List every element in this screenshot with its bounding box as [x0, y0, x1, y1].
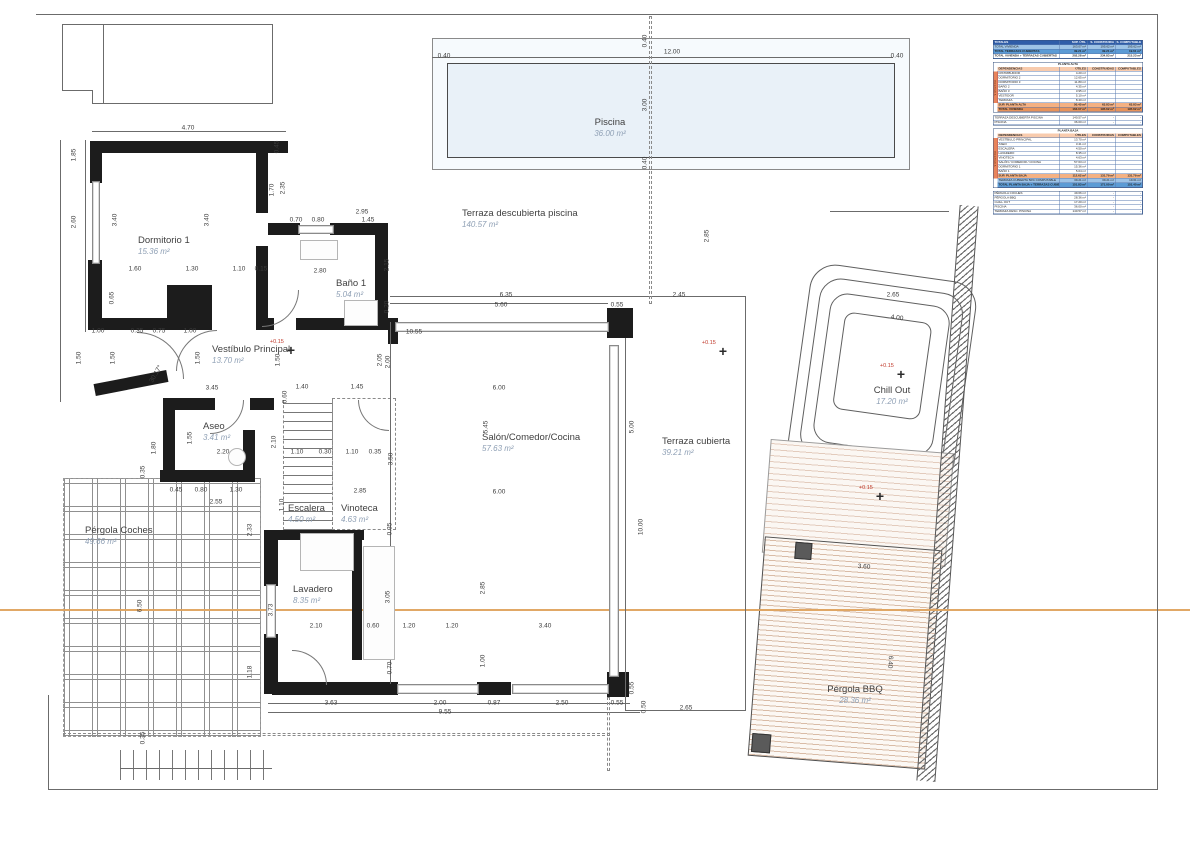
boundary-line — [272, 25, 273, 104]
dimension-label: 0.45 — [170, 487, 183, 494]
room-name: Aseo — [203, 422, 230, 433]
wall — [477, 682, 511, 695]
dimension-label: 2.60 — [71, 216, 78, 229]
dimension-label: 1.70 — [269, 184, 276, 197]
table-block: TERRAZA DESCUBIERTA PISCINA140.57 m²--PI… — [993, 116, 1143, 126]
boundary-line — [62, 24, 273, 25]
dimension-label: 0.80 — [312, 217, 325, 224]
table-cell: 151.40 m² — [1116, 183, 1143, 188]
dimension-label: 3.63 — [325, 700, 338, 707]
boundary-line — [62, 24, 63, 91]
boundary-line — [48, 695, 49, 790]
wall — [250, 398, 274, 410]
floor-plan-sheet: TOTALESSUP. ÚTILS. CONSTRUIDAS. COMPUTAB… — [0, 0, 1190, 841]
dimension-label: 0.60 — [367, 623, 380, 630]
dimension-label: 0.35 — [140, 732, 147, 745]
dimension-label: 2.05 — [377, 354, 384, 367]
room-name: Salón/Comedor/Cocina — [482, 433, 580, 444]
dimension-label: 1.50 — [76, 352, 83, 365]
table-cell: 215.23 m² — [1116, 54, 1143, 59]
table-side-band: VIVIENDA — [994, 72, 999, 104]
room-area: 39.21 m² — [662, 448, 730, 457]
dimension-label: 0.40 — [642, 35, 649, 48]
dimension-label: 1.50 — [275, 354, 282, 367]
boundary-line — [268, 712, 640, 713]
window-glazing — [609, 345, 619, 677]
dimension-label: 0.87 — [488, 700, 501, 707]
dimension-label: 1.85 — [71, 149, 78, 162]
dimension-label: 0.60 — [282, 391, 289, 404]
room-label: Terraza cubierta39.21 m² — [662, 437, 730, 457]
dimension-label: 2.45 — [673, 292, 686, 299]
room-area: 5.04 m² — [336, 290, 366, 299]
table-block: PÉRGOLA COCHES49.66 m²--PÉRGOLA BBQ28.36… — [993, 191, 1143, 215]
room-name: Pérgola Coches — [85, 526, 153, 537]
boundary-line — [92, 103, 273, 104]
dimension-label: 3.45 — [206, 385, 219, 392]
dimension-label: 9.55 — [439, 709, 452, 716]
dimension-label: 10.00 — [638, 519, 645, 535]
dimension-label: 1.18 — [247, 666, 254, 679]
table-block: VIVIENDAPLANTA BAJADEPENDENCIASÚTILESCON… — [993, 129, 1143, 189]
dimension-label: 0.55 — [629, 682, 636, 695]
room-area: 36.00 m² — [594, 129, 626, 138]
room-label: Salón/Comedor/Cocina57.63 m² — [482, 433, 580, 453]
table-cell: - — [1116, 121, 1143, 126]
dimension-label: 0.30 — [319, 449, 332, 456]
dimension-label: 3.73 — [268, 604, 275, 617]
room-area: 28.36 m² — [827, 696, 882, 705]
table-cell: 171.00 m² — [1088, 183, 1116, 188]
table-cell: 195.62 m² — [1116, 108, 1143, 113]
dimension-label: 0.15 — [255, 266, 268, 273]
dimension-label: 2.85 — [480, 582, 487, 595]
dimension-label: 1.10 — [346, 449, 359, 456]
dimension-label: 1.10 — [233, 266, 246, 273]
room-label: Dormitorio 115.36 m² — [138, 236, 190, 256]
boundary-line — [85, 140, 86, 332]
table-cell: TERRAZA DESC. PISCINA — [994, 210, 1060, 215]
dimension-label: 2.80 — [314, 268, 327, 275]
dimension-label: 3.60 — [857, 563, 870, 571]
dimension-label: 6.00 — [493, 489, 506, 496]
dimension-label: 0.70 — [387, 662, 394, 675]
boundary-line — [268, 703, 630, 704]
room-name: Terraza descubierta piscina — [462, 209, 578, 220]
dimension-label: 2.35 — [280, 182, 287, 195]
dimension-label: 0.40 — [642, 157, 649, 170]
dimension-label: 1.40 — [296, 384, 309, 391]
room-name: Pérgola BBQ — [827, 685, 882, 696]
dimension-label: 2.65 — [680, 705, 693, 712]
dimension-label: 2.10 — [271, 436, 278, 449]
dimension-label: 5.45 — [483, 421, 490, 434]
room-name: Baño 1 — [336, 279, 366, 290]
dimension-label: 1.50 — [110, 352, 117, 365]
level-marker: ++0.15 — [897, 367, 905, 381]
room-label: Vinoteca4.63 m² — [341, 504, 378, 524]
table-row: TOTAL VIVIENDA + TERRAZAS CUBIERTAS202.2… — [994, 54, 1143, 59]
dimension-label: 3.40 — [112, 214, 119, 227]
boundary-line — [120, 768, 272, 769]
level-marker: ++0.15 — [719, 344, 727, 358]
wall — [160, 470, 248, 482]
table-cell: PISCINA — [994, 121, 1060, 126]
dimension-label: 3.50 — [388, 453, 395, 466]
window-glazing — [512, 684, 609, 694]
dimension-label: 2.10 — [310, 623, 323, 630]
dimension-label: 3.00 — [642, 99, 649, 112]
room-area: 3.41 m² — [203, 433, 230, 442]
dimension-label: 1.45 — [362, 217, 375, 224]
table-cell: 140.57 m² — [1060, 210, 1088, 215]
table-side-band: VIVIENDA — [994, 138, 999, 179]
room-label: Terraza descubierta piscina140.57 m² — [462, 209, 578, 229]
table-cell: 151.83 m² — [1060, 183, 1088, 188]
room-name: Piscina — [594, 118, 626, 129]
room-area: 8.35 m² — [293, 596, 333, 605]
dimension-label: 1.10 — [291, 449, 304, 456]
room-area: 17.20 m² — [874, 397, 910, 406]
dimension-label: 0.55 — [611, 700, 624, 707]
dimension-label: 1.45 — [351, 384, 364, 391]
dimension-label: 0.20 — [384, 301, 391, 314]
dimension-label: 2.00 — [434, 700, 447, 707]
boundary-line — [92, 90, 93, 104]
dimension-label: 0.35 — [369, 449, 382, 456]
room-area: 57.63 m² — [482, 444, 580, 453]
dimension-label: 0.55 — [611, 302, 624, 309]
room-name: Escalera — [288, 504, 325, 515]
dimension-label: 2.15 — [384, 259, 391, 272]
fixture — [300, 240, 338, 260]
room-name: Chill Out — [874, 386, 910, 397]
dimension-label: 0.80 — [195, 487, 208, 494]
table-cell: TOTAL PLANTA BAJA + TERRAZAS CUBIERTAS — [998, 183, 1060, 188]
section-cut-line — [0, 609, 1190, 611]
wall — [163, 398, 175, 472]
dimension-label: 0.40 — [891, 53, 904, 60]
room-label: Aseo3.41 m² — [203, 422, 230, 442]
fixture — [300, 533, 354, 571]
room-name: Terraza cubierta — [662, 437, 730, 448]
dimension-label: 12.00 — [664, 49, 680, 56]
dimension-label: 1.00 — [184, 328, 197, 335]
room-name: Dormitorio 1 — [138, 236, 190, 247]
boundary-line — [103, 24, 104, 104]
dimension-label: 2.20 — [217, 449, 230, 456]
dimension-label: 1.50 — [195, 352, 202, 365]
dimension-label: 2.65 — [887, 292, 900, 299]
dimension-label: 0.40 — [438, 53, 451, 60]
dimension-label: 0.35 — [131, 328, 144, 335]
table-cell: 234.83 m² — [1088, 54, 1116, 59]
window-glazing — [298, 225, 334, 234]
room-area: 49.66 m² — [85, 537, 153, 546]
table-cell: - — [1088, 121, 1116, 126]
window-glazing — [92, 181, 100, 264]
room-label: Escalera4.50 m² — [288, 504, 325, 524]
dimension-label: 1.30 — [230, 487, 243, 494]
boundary-line — [1157, 14, 1158, 790]
dimension-label: 5.60 — [495, 302, 508, 309]
boundary-line — [830, 211, 949, 212]
boundary-line — [60, 140, 61, 402]
dimension-label: 1.55 — [187, 432, 194, 445]
table-cell: 195.62 m² — [1088, 108, 1116, 113]
room-label: Baño 15.04 m² — [336, 279, 366, 299]
pergola-bbq — [748, 536, 943, 769]
dimension-label: 3.40 — [204, 214, 211, 227]
boundary-line — [625, 338, 626, 711]
table-cell: TOTAL VIVIENDA + TERRAZAS CUBIERTAS — [994, 54, 1060, 59]
dimension-label: 6.35 — [500, 292, 513, 299]
dimension-label: 1.80 — [151, 442, 158, 455]
dimension-label: 0.75 — [153, 328, 166, 335]
level-value: +0.15 — [880, 364, 894, 370]
table-cell: 36.00 m² — [1060, 121, 1088, 126]
table-block: TOTALESSUP. ÚTILS. CONSTRUIDAS. COMPUTAB… — [993, 40, 1143, 59]
boundary-line — [48, 789, 1158, 790]
dimension-label: 2.85 — [354, 488, 367, 495]
room-label: Chill Out17.20 m² — [874, 386, 910, 406]
boundary-line — [62, 90, 93, 91]
level-value: +0.15 — [702, 341, 716, 347]
fixture — [344, 300, 378, 326]
dimension-label: 1.00 — [480, 655, 487, 668]
boundary-line — [390, 296, 746, 297]
table-row: TOTAL VIVIENDA163.07 m²195.62 m²195.62 m… — [998, 108, 1143, 113]
room-name: Lavadero — [293, 585, 333, 596]
room-label: Pérgola BBQ28.36 m² — [827, 685, 882, 705]
dimension-label: 2.00 — [385, 356, 392, 369]
room-area: 140.57 m² — [462, 220, 578, 229]
wall — [90, 141, 102, 183]
dimension-label: 5.00 — [629, 421, 636, 434]
table-row: TOTAL PLANTA BAJA + TERRAZAS CUBIERTAS15… — [998, 183, 1143, 188]
table-cell: - — [1116, 210, 1143, 215]
room-area: 4.63 m² — [341, 515, 378, 524]
surface-area-table: TOTALESSUP. ÚTILS. CONSTRUIDAS. COMPUTAB… — [993, 40, 1143, 218]
level-value: +0.15 — [859, 486, 873, 492]
table-cell: 163.07 m² — [1060, 108, 1088, 113]
dimension-label: 2.85 — [704, 230, 711, 243]
dimension-label: 0.35 — [387, 523, 394, 536]
dimension-label: 0.45 — [274, 141, 281, 154]
wall — [264, 538, 278, 586]
level-value: +0.15 — [270, 340, 284, 346]
dimension-label: 1.00 — [92, 328, 105, 335]
fence-ticks — [120, 750, 272, 780]
wall — [90, 141, 288, 153]
level-marker: ++0.15 — [287, 343, 295, 357]
dimension-label: 6.40 — [886, 655, 894, 668]
boundary-line — [745, 296, 746, 711]
table-row: TERRAZA DESC. PISCINA140.57 m²-- — [994, 210, 1143, 215]
room-area: 15.36 m² — [138, 247, 190, 256]
door-arc — [262, 290, 299, 327]
dimension-label: 6.50 — [137, 600, 144, 613]
table-cell: 202.28 m² — [1060, 54, 1088, 59]
dimension-label: 1.20 — [446, 623, 459, 630]
dimension-label: 2.55 — [210, 499, 223, 506]
dimension-label: 0.70 — [290, 217, 303, 224]
room-area: 4.50 m² — [288, 515, 325, 524]
table-cell: TOTAL VIVIENDA — [998, 108, 1060, 113]
dimension-label: 1.20 — [403, 623, 416, 630]
wall — [272, 682, 398, 695]
dimension-label: 2.50 — [556, 700, 569, 707]
dimension-label: 1.30 — [186, 266, 199, 273]
room-label: Lavadero8.35 m² — [293, 585, 333, 605]
table-block: VIVIENDAPLANTA ALTADEPENDENCIASÚTILESCON… — [993, 62, 1143, 113]
pool — [447, 63, 895, 158]
wall — [167, 285, 212, 330]
door-arc — [292, 650, 327, 685]
wall — [607, 308, 633, 338]
table-row: PISCINA36.00 m²-- — [994, 121, 1143, 126]
dimension-label: 4.70 — [182, 125, 195, 132]
window-glazing — [397, 684, 479, 694]
pergola-coches-grid — [63, 478, 261, 737]
dimension-label: 3.05 — [385, 591, 392, 604]
room-name: Vinoteca — [341, 504, 378, 515]
room-label: Piscina36.00 m² — [594, 118, 626, 138]
table-cell: - — [1088, 210, 1116, 215]
window-glazing — [395, 322, 609, 332]
room-label: Pérgola Coches49.66 m² — [85, 526, 153, 546]
dimension-label: 6.00 — [493, 385, 506, 392]
level-marker: ++0.15 — [876, 489, 884, 503]
dimension-label: 10.55 — [406, 329, 422, 336]
dimension-label: 3.40 — [539, 623, 552, 630]
dimension-label: 2.95 — [356, 209, 369, 216]
dimension-label: 0.35 — [140, 466, 147, 479]
dashed-line — [649, 16, 652, 304]
dimension-label: 2.33 — [247, 524, 254, 537]
boundary-line — [36, 14, 1158, 15]
boundary-line — [432, 57, 893, 58]
fixture — [228, 448, 246, 466]
dimension-label: 1.60 — [129, 266, 142, 273]
dimension-label: 0.50 — [641, 701, 648, 714]
dimension-label: 0.65 — [109, 292, 116, 305]
dimension-label: 1.10 — [279, 499, 286, 512]
wall — [256, 153, 268, 213]
wall — [268, 223, 300, 235]
